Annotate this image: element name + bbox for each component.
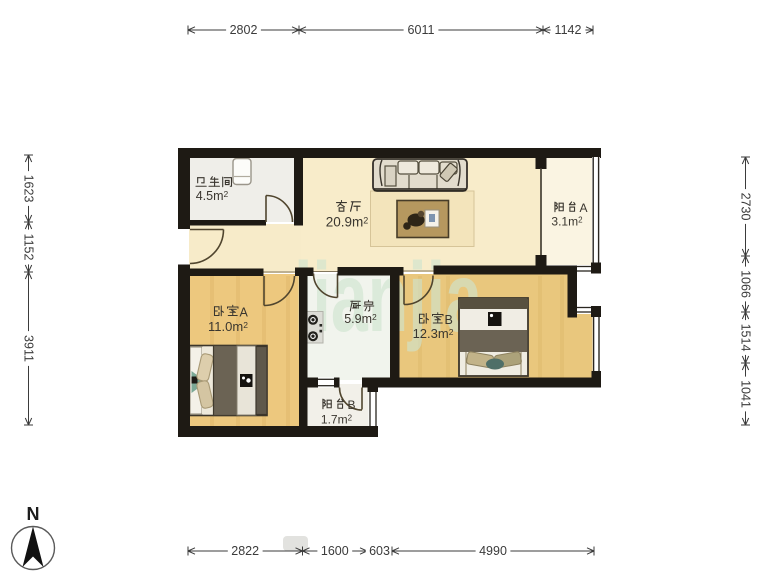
svg-text:4990: 4990 [479,544,507,558]
svg-text:1623: 1623 [21,175,35,203]
svg-text:3911: 3911 [21,335,35,362]
svg-text:1152: 1152 [21,234,35,261]
svg-text:1142: 1142 [555,23,582,37]
svg-text:11.0m2: 11.0m2 [208,319,248,334]
svg-text:20.9m2: 20.9m2 [326,215,369,230]
svg-text:12.3m2: 12.3m2 [413,326,454,341]
svg-text:1041: 1041 [738,380,752,408]
svg-text:2802: 2802 [230,23,258,37]
svg-text:A: A [580,201,588,215]
svg-text:1600: 1600 [321,544,349,558]
svg-text:1066: 1066 [738,270,752,298]
svg-text:6011: 6011 [408,23,435,37]
svg-text:B: B [445,313,453,327]
svg-text:603: 603 [369,544,390,558]
svg-text:2730: 2730 [738,193,752,221]
svg-text:N: N [27,504,40,524]
svg-text:A: A [240,306,249,320]
svg-text:B: B [348,398,356,412]
svg-text:2822: 2822 [231,544,259,558]
svg-text:1514: 1514 [738,324,752,352]
